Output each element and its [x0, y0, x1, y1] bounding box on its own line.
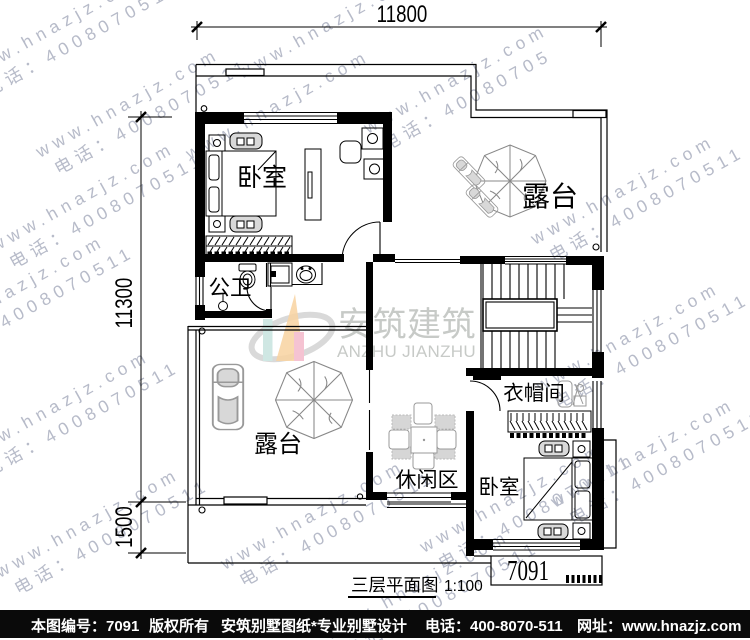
svg-text:ANZHU JIANZHU: ANZHU JIANZHU — [337, 342, 476, 361]
svg-text:网址：www.hnazjz.com: 网址：www.hnazjz.com — [577, 617, 741, 635]
svg-text:版权所有: 版权所有 — [149, 617, 209, 635]
svg-text:本图编号：7091: 本图编号：7091 — [31, 617, 139, 635]
svg-text:休闲区: 休闲区 — [396, 469, 459, 492]
svg-text:11300: 11300 — [111, 278, 138, 329]
svg-text:卧室: 卧室 — [237, 164, 287, 192]
svg-text:1500: 1500 — [111, 506, 138, 548]
svg-text:安筑别墅图纸*专业别墅设计: 安筑别墅图纸*专业别墅设计 — [221, 617, 407, 635]
svg-text:公卫: 公卫 — [208, 276, 251, 300]
svg-text:露台: 露台 — [522, 181, 578, 212]
svg-text:7091: 7091 — [507, 556, 549, 587]
svg-text:衣帽间: 衣帽间 — [503, 382, 565, 405]
svg-text:11800: 11800 — [377, 1, 428, 28]
svg-text:露台: 露台 — [254, 431, 302, 458]
svg-text:三层平面图: 三层平面图 — [351, 575, 439, 595]
svg-text:1:100: 1:100 — [444, 578, 483, 595]
svg-text:卧室: 卧室 — [479, 476, 520, 499]
svg-text:安筑建筑: 安筑建筑 — [338, 306, 476, 344]
svg-text:电话：400-8070-511: 电话：400-8070-511 — [425, 617, 563, 635]
